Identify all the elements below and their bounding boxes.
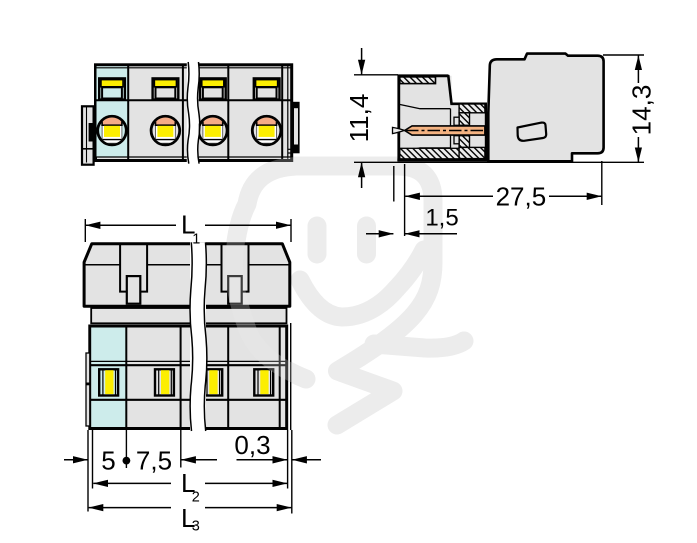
svg-text:27,5: 27,5: [496, 182, 547, 212]
svg-text:1: 1: [192, 232, 200, 248]
svg-text:14,3: 14,3: [627, 85, 657, 136]
svg-text:3: 3: [192, 519, 200, 535]
svg-text:7,5: 7,5: [136, 445, 172, 475]
svg-text:1,5: 1,5: [425, 205, 458, 232]
svg-text:11,4: 11,4: [344, 94, 374, 143]
svg-text:5: 5: [101, 445, 115, 475]
svg-text:0,3: 0,3: [234, 430, 270, 460]
